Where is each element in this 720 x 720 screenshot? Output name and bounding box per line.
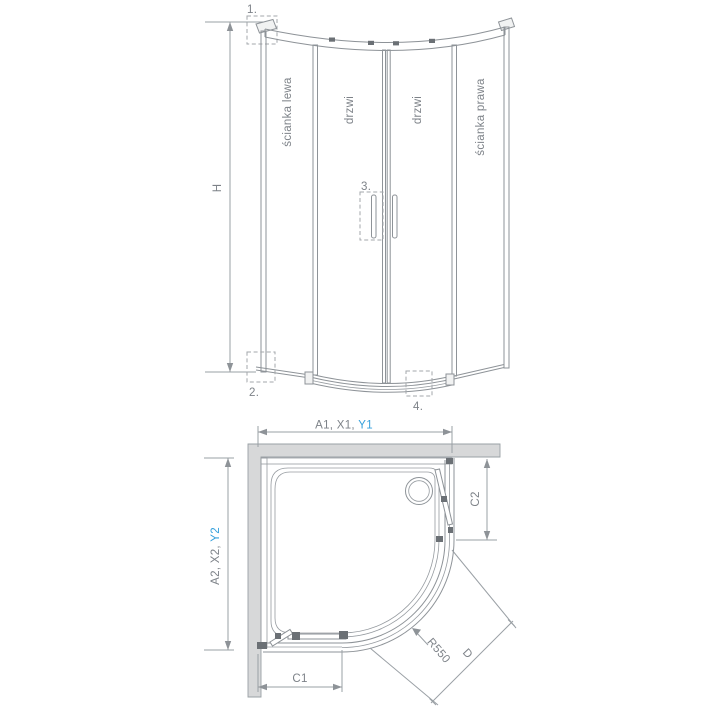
handle-right xyxy=(393,195,398,238)
right-door-panel xyxy=(435,469,453,542)
arrow-right-icon xyxy=(443,429,452,435)
right-fixed-panel-label: ścianka prawa xyxy=(475,78,487,156)
plan-view: A1, X1, Y1 A2, X2, Y2 C2 C1 xyxy=(204,420,516,706)
c2-dimension-label: C2 xyxy=(470,491,482,506)
depth-dimension: A2, X2, Y2 xyxy=(204,458,234,650)
c2-dimension: C2 xyxy=(456,459,497,540)
panel-dividers xyxy=(313,45,457,383)
diagonal-dimension: D xyxy=(370,550,516,705)
roller-block xyxy=(393,41,399,45)
left-door-label: drzwi xyxy=(344,96,356,124)
arrow-down-icon xyxy=(484,531,490,540)
tray-frame xyxy=(261,458,452,648)
rail-end-cap-right xyxy=(446,374,454,385)
divider-door-right-edge xyxy=(387,50,390,383)
arrow-up-icon xyxy=(227,22,233,31)
callout-1-label: 1. xyxy=(247,4,257,16)
shower-tray-rim xyxy=(271,468,439,637)
arrow-up-icon xyxy=(225,458,231,467)
divider-door-right-fixed xyxy=(452,45,457,376)
callout-2-label: 2. xyxy=(249,387,259,399)
height-dimension-label: H xyxy=(212,184,224,193)
arrow-right-icon xyxy=(333,684,342,690)
drawing-svg: H 1. xyxy=(0,0,720,720)
width-dimension-label: A1, X1, Y1 xyxy=(315,420,373,432)
c1-dimension-label: C1 xyxy=(292,673,307,685)
door-handles: 3. xyxy=(360,181,397,240)
bottom-door-panel xyxy=(257,630,348,650)
track-wall-bracket xyxy=(446,458,453,464)
left-wall-profile xyxy=(256,20,277,373)
callout-3-label: 3. xyxy=(361,181,371,193)
roller-block xyxy=(429,39,435,43)
right-wall-profile xyxy=(499,18,515,368)
top-rail xyxy=(265,27,505,51)
radius-callout: R550 xyxy=(412,628,452,666)
arrow-down-icon xyxy=(227,363,233,372)
left-fixed-panel-label: ścianka lewa xyxy=(282,77,294,147)
arrow-left-icon xyxy=(258,429,267,435)
radius-arrow-icon xyxy=(412,628,421,636)
callout-4-label: 4. xyxy=(413,401,423,413)
height-dimension: H xyxy=(205,22,263,372)
arrow-down-icon xyxy=(225,641,231,650)
radius-label: R550 xyxy=(424,636,452,666)
drain-circle xyxy=(406,478,433,505)
technical-drawing-canvas: H 1. xyxy=(0,0,720,720)
depth-dimension-label: A2, X2, Y2 xyxy=(210,527,222,585)
handle-left xyxy=(372,195,377,238)
roller-block xyxy=(368,41,374,45)
arrow-up-icon xyxy=(484,459,490,468)
divider-left-fixed-door xyxy=(313,45,318,375)
front-view: H 1. xyxy=(205,4,515,413)
right-door-label: drzwi xyxy=(412,96,424,124)
wall-l-shape xyxy=(248,444,500,697)
roller-block xyxy=(329,38,335,42)
bottom-rail xyxy=(256,365,504,393)
c1-dimension: C1 xyxy=(258,650,342,692)
rail-end-cap-left xyxy=(305,372,313,384)
diagonal-dimension-label: D xyxy=(460,647,475,661)
